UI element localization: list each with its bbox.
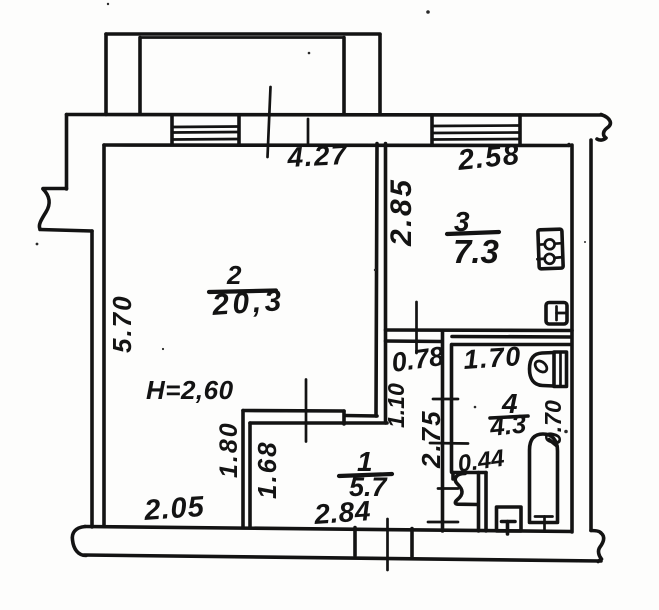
svg-text:1.80: 1.80 bbox=[215, 421, 243, 478]
svg-text:20,3: 20,3 bbox=[210, 284, 286, 322]
svg-text:1.70: 1.70 bbox=[462, 341, 523, 375]
svg-text:2.84: 2.84 bbox=[312, 495, 372, 530]
svg-text:2.75: 2.75 bbox=[416, 409, 446, 469]
svg-text:1.10: 1.10 bbox=[383, 383, 409, 428]
svg-text:5.70: 5.70 bbox=[107, 294, 137, 353]
svg-text:2: 2 bbox=[226, 260, 242, 290]
svg-text:1.68: 1.68 bbox=[252, 440, 282, 499]
svg-text:0.70: 0.70 bbox=[540, 400, 566, 445]
svg-text:H=2,60: H=2,60 bbox=[146, 375, 234, 405]
svg-text:2.05: 2.05 bbox=[142, 491, 206, 527]
svg-text:4.27: 4.27 bbox=[286, 139, 349, 173]
svg-text:2.85: 2.85 bbox=[385, 178, 418, 247]
svg-text:4.3: 4.3 bbox=[487, 408, 528, 442]
svg-text:0.78: 0.78 bbox=[390, 341, 446, 378]
svg-text:7.3: 7.3 bbox=[453, 233, 499, 270]
svg-text:0.44: 0.44 bbox=[456, 445, 506, 478]
svg-text:2.58: 2.58 bbox=[455, 139, 521, 177]
